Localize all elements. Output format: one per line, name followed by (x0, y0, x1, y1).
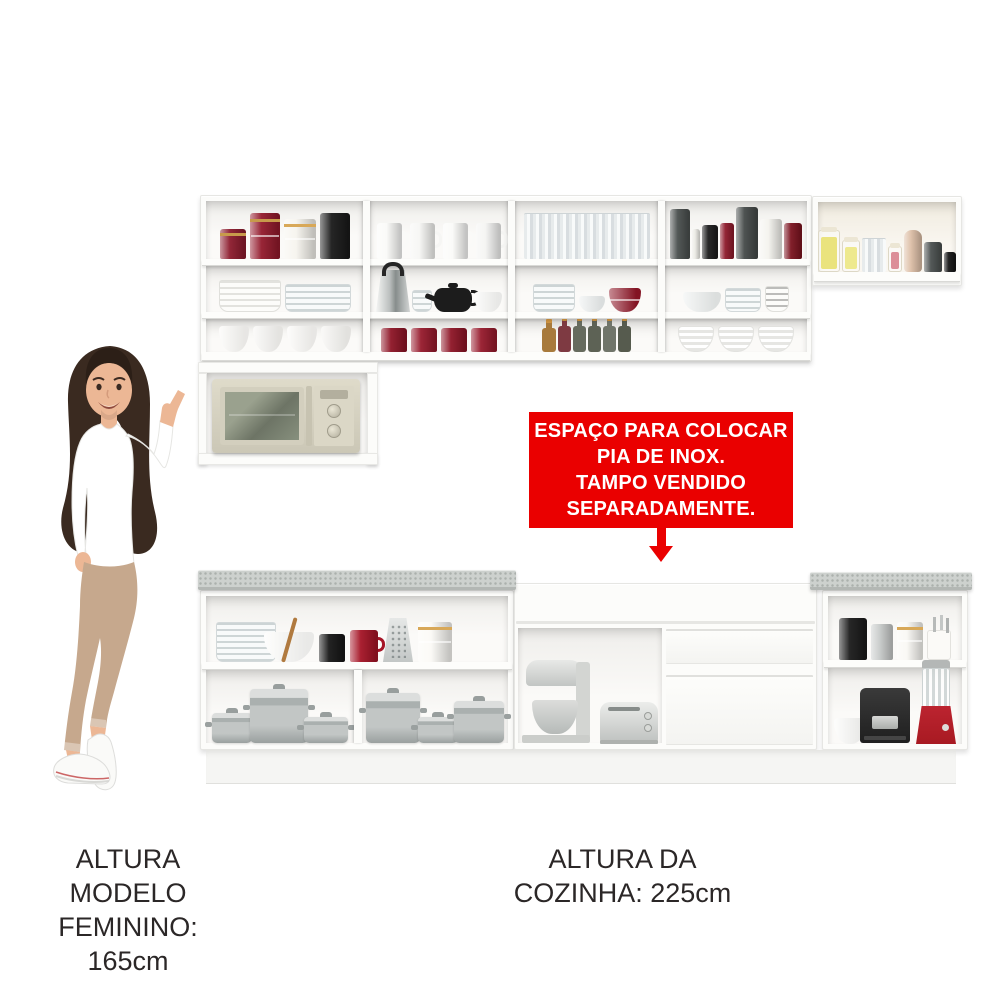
pasta-jar (818, 230, 840, 272)
model-height-caption: ALTURA MODELO FEMININO: 165cm (18, 842, 238, 978)
model-eye (96, 384, 101, 390)
split (610, 299, 640, 301)
toe-kick (206, 750, 956, 784)
gray-canister (736, 207, 758, 259)
casserole (454, 701, 504, 743)
white-bowl (287, 326, 317, 352)
saucepan (418, 717, 458, 743)
drinking-glasses (524, 213, 650, 259)
niche-side (198, 373, 207, 465)
upper-shelf-compartment (370, 319, 508, 352)
hdl (402, 231, 409, 248)
gray-canister (924, 242, 942, 272)
coffee-machine-group (872, 716, 898, 729)
arrow-down-icon (657, 528, 666, 548)
upper-shelf-compartment (370, 201, 508, 259)
microwave-handle (306, 386, 312, 446)
red-canister-stack (250, 213, 280, 259)
fill (821, 237, 837, 269)
lower-shelf (828, 596, 962, 660)
red-mug (350, 630, 378, 662)
black-teapot (434, 288, 472, 312)
upper-shelf-compartment (665, 319, 807, 352)
red-canister (411, 328, 437, 352)
fill (845, 247, 857, 270)
phr (308, 705, 315, 710)
white-mug (410, 223, 435, 259)
blender-base (916, 706, 956, 744)
countertop-right (810, 572, 972, 590)
glass-cups (862, 238, 886, 272)
green-bottle (573, 326, 586, 352)
phr (504, 714, 511, 719)
glass-bowl (579, 296, 605, 312)
pan (304, 717, 348, 743)
hdl (435, 231, 442, 248)
white-mug (476, 223, 501, 259)
pink-jar (888, 246, 902, 272)
model-pointing-hand (160, 390, 185, 427)
stockpot (366, 693, 420, 743)
white-canister-stack (897, 622, 923, 660)
arrow-down-icon (649, 546, 673, 562)
niche-bottom (198, 453, 378, 465)
upper-shelf-compartment (665, 266, 807, 312)
banner-line: PIA DE INOX. (529, 444, 793, 470)
white-bowl (219, 326, 249, 352)
khdl (382, 262, 404, 276)
white-swirl-bowl (758, 326, 794, 352)
green-bottle (603, 326, 616, 352)
black-canister (320, 213, 350, 259)
white-canister (760, 219, 782, 259)
white-canister-stack (418, 622, 452, 662)
upper-shelf-compartment (206, 266, 363, 312)
amber-bottle (542, 328, 556, 352)
upper-shelf-compartment (206, 201, 363, 259)
caption-line: COZINHA: 225cm (505, 876, 740, 910)
white-plate-stack (219, 280, 281, 312)
glass-plate-stack (285, 284, 351, 312)
phl (359, 708, 366, 713)
sink-notice-banner: ESPAÇO PARA COLOCAR PIA DE INOX. TAMPO V… (529, 412, 793, 528)
black-canister (702, 225, 718, 259)
glass-bowl (683, 292, 721, 312)
split (285, 238, 315, 240)
split (898, 640, 922, 642)
toaster-knob (644, 724, 652, 732)
red-canister (720, 223, 734, 259)
kettle (376, 270, 410, 312)
sink-cabinet-groove (516, 621, 815, 624)
phr (420, 708, 427, 713)
white-swirl-bowl (718, 326, 754, 352)
phl (205, 722, 212, 727)
white-swirl-bowl (678, 326, 714, 352)
band (897, 627, 923, 630)
black-canister (839, 618, 867, 660)
shelf-board (202, 259, 810, 266)
toaster-slot (608, 707, 640, 711)
caption-line: ALTURA MODELO (18, 842, 238, 910)
kitchen-height-caption: ALTURA DA COZINHA: 225cm (505, 842, 740, 910)
coffee-machine-tray (864, 736, 906, 740)
microwave-knob (327, 424, 341, 438)
phl (297, 725, 304, 730)
hdl (501, 231, 508, 248)
white-canister-stack (284, 219, 316, 259)
band (418, 627, 452, 630)
grater (383, 618, 413, 662)
lower-shelf (206, 596, 508, 662)
pots-compartment (206, 670, 354, 743)
toaster-knob (644, 712, 652, 720)
red-bottle (558, 326, 571, 352)
red-bowl-stack (609, 288, 641, 312)
red-canister (441, 328, 467, 352)
side-cabinet-shelf (818, 202, 956, 272)
candle (904, 230, 922, 272)
shelf-board (202, 662, 512, 670)
caption-line: ALTURA DA (505, 842, 740, 876)
cabinet-divider (363, 201, 370, 352)
shelf-board (814, 272, 960, 282)
band (284, 224, 316, 227)
stand-mixer-base (522, 735, 590, 743)
glass-containers (725, 288, 761, 312)
banner-line: SEPARADAMENTE. (529, 496, 793, 522)
upper-shelf-compartment (515, 266, 658, 312)
white-mug (377, 223, 402, 259)
upper-shelf-compartment (665, 201, 807, 259)
white-bowl (253, 326, 283, 352)
niche-top (198, 362, 378, 373)
white-bowl (474, 292, 502, 312)
utensil-holder (927, 630, 951, 660)
shelf-board (202, 352, 810, 361)
drawer-door (666, 675, 813, 745)
stand-mixer-pillar (576, 662, 590, 736)
niche-side (367, 373, 378, 465)
kitchen-product-image: ESPAÇO PARA COLOCAR PIA DE INOX. TAMPO V… (0, 0, 1000, 1000)
upper-shelf-compartment (206, 319, 363, 352)
toaster-base (600, 740, 658, 744)
silver-canister (871, 624, 893, 660)
red-canister (381, 328, 407, 352)
white-jar (692, 229, 700, 259)
saucepan (212, 713, 252, 743)
phl (243, 705, 250, 710)
split (419, 641, 451, 643)
blender-button (942, 724, 949, 731)
fill (891, 252, 899, 269)
band (250, 219, 280, 222)
green-bottle (618, 326, 631, 352)
hdl (468, 231, 475, 248)
cabinet-divider (658, 201, 665, 352)
gray-plate-stack (765, 286, 789, 312)
red-canister (471, 328, 497, 352)
white-mug (443, 223, 468, 259)
cabinet-divider (354, 670, 362, 743)
shelf-board (202, 312, 810, 319)
green-bottle (588, 326, 601, 352)
banner-line: TAMPO VENDIDO (529, 470, 793, 496)
blender-lid (922, 660, 950, 668)
upper-shelf-compartment (515, 201, 658, 259)
drawer (666, 629, 813, 664)
dark-red-box (784, 223, 802, 259)
model-blouse (72, 424, 134, 569)
glass-plates (533, 284, 575, 312)
band (220, 233, 246, 236)
banner-line: ESPAÇO PARA COLOCAR (529, 418, 793, 444)
gray-canister (670, 209, 690, 259)
pasta-jar (842, 240, 860, 272)
phl (411, 725, 418, 730)
blender-jar (922, 668, 950, 708)
stockpot (250, 689, 308, 743)
microwave-knob (327, 404, 341, 418)
microwave-display (320, 390, 348, 399)
split (251, 235, 279, 237)
model-photo (22, 340, 197, 802)
black-cup (944, 252, 956, 272)
hdl (378, 637, 385, 652)
white-bowl (321, 326, 351, 352)
phl (447, 714, 454, 719)
pots-compartment (362, 670, 508, 743)
cabinet-divider (508, 201, 515, 352)
countertop-left (198, 570, 516, 590)
black-mug (319, 634, 345, 662)
model-eye (116, 384, 121, 390)
microwave-window (220, 387, 304, 445)
upper-shelf-compartment (515, 319, 658, 352)
red-canister (220, 229, 246, 259)
upper-shelf-compartment (370, 266, 508, 312)
caption-line: FEMININO: 165cm (18, 910, 238, 978)
